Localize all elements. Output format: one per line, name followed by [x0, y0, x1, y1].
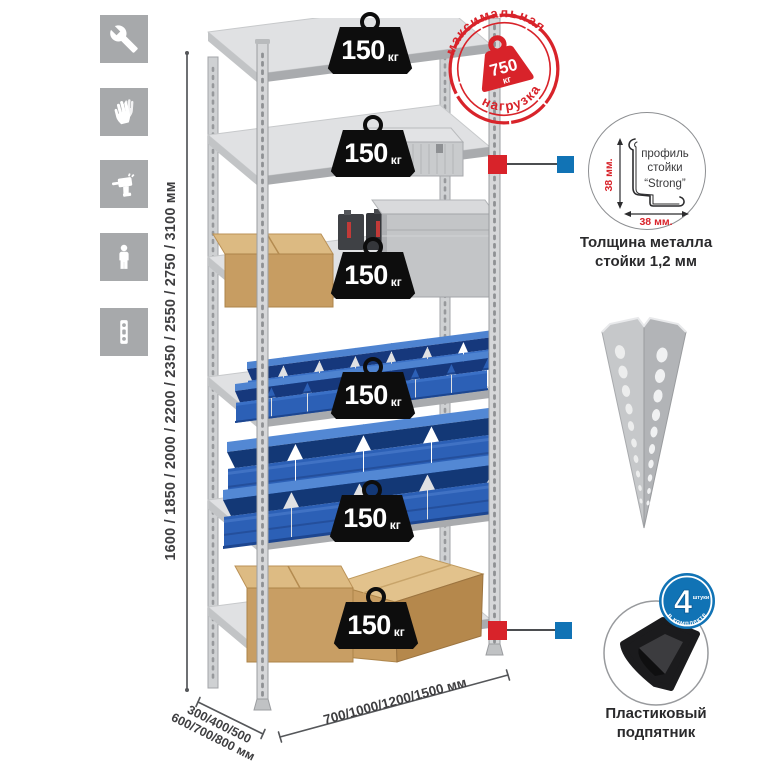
- max-load-stamp: максимальная нагрузка 750 кг: [440, 5, 568, 133]
- gloves-icon: [109, 97, 139, 127]
- profile-dim-vertical: 38 мм.: [603, 158, 615, 191]
- shelf-load-badge: 150кг: [330, 237, 416, 299]
- shelf-load-badge: 150кг: [330, 357, 416, 419]
- person-icon: [109, 242, 139, 272]
- gloves-icon-tile: [100, 88, 148, 136]
- profile-caption-line1: Толщина металла: [571, 234, 721, 253]
- profile-label-2: стойки: [647, 162, 682, 174]
- height-dimension-label: 1600 / 1850 / 2000 / 2200 / 2350 / 2550 …: [163, 181, 179, 560]
- person-icon-tile: [100, 233, 148, 281]
- cardboard-box: [213, 234, 333, 307]
- load-unit: кг: [388, 50, 399, 64]
- foot-caption: Пластиковый подпятник: [581, 705, 731, 743]
- callout-marker-blue: [557, 156, 574, 173]
- foot-caption-line1: Пластиковый: [581, 705, 731, 724]
- shelf-load-badge: 150кг: [329, 480, 415, 542]
- load-unit: кг: [391, 153, 402, 167]
- kit-count-note: штуки: [693, 595, 710, 601]
- kit-count-value: 4: [674, 583, 693, 620]
- drill-icon: [109, 169, 139, 199]
- profile-label-1: профиль: [641, 148, 689, 160]
- plastic-foot-figure: 4 штуки в комплекте: [595, 568, 730, 713]
- angle-post-image: [598, 310, 698, 540]
- spirit-level-icon: [109, 317, 139, 347]
- load-value: 150: [344, 138, 388, 169]
- shelf-load-badge: 150кг: [330, 115, 416, 177]
- callout-marker-blue: [555, 622, 572, 639]
- profile-caption-line2: стойки 1,2 мм: [571, 253, 721, 272]
- load-value: 150: [347, 610, 391, 641]
- profile-caption: Толщина металла стойки 1,2 мм: [571, 234, 721, 272]
- post-profile-figure: 38 мм. 38 мм. профиль стойки “Strong”: [588, 112, 706, 230]
- wrench-icon-tile: [100, 15, 148, 63]
- callout-marker-red: [488, 155, 507, 174]
- load-value: 150: [343, 503, 387, 534]
- load-value: 150: [344, 260, 388, 291]
- drill-icon-tile: [100, 160, 148, 208]
- load-unit: кг: [390, 518, 401, 532]
- load-unit: кг: [394, 625, 405, 639]
- dimension-end-dot: [185, 51, 189, 55]
- level-icon-tile: [100, 308, 148, 356]
- callout-line: [507, 163, 557, 165]
- height-dimension-line: [186, 53, 188, 690]
- load-value: 150: [344, 380, 388, 411]
- product-infographic: 1600 / 1850 / 2000 / 2200 / 2350 / 2550 …: [0, 0, 765, 765]
- load-unit: кг: [391, 395, 402, 409]
- post-profile-drawing: 38 мм. 38 мм. профиль стойки “Strong”: [589, 113, 705, 229]
- load-unit: кг: [391, 275, 402, 289]
- shelf-load-badge: 150кг: [327, 12, 413, 74]
- wrench-icon: [109, 24, 139, 54]
- profile-dim-horizontal: 38 мм.: [639, 216, 672, 228]
- foot-caption-line2: подпятник: [581, 724, 731, 743]
- callout-line: [507, 629, 555, 631]
- load-value: 150: [341, 35, 385, 66]
- shelf-load-badge: 150кг: [333, 587, 419, 649]
- kit-count-badge: 4 штуки в комплекте: [659, 573, 715, 629]
- profile-label-3: “Strong”: [644, 178, 686, 190]
- callout-marker-red: [488, 621, 507, 640]
